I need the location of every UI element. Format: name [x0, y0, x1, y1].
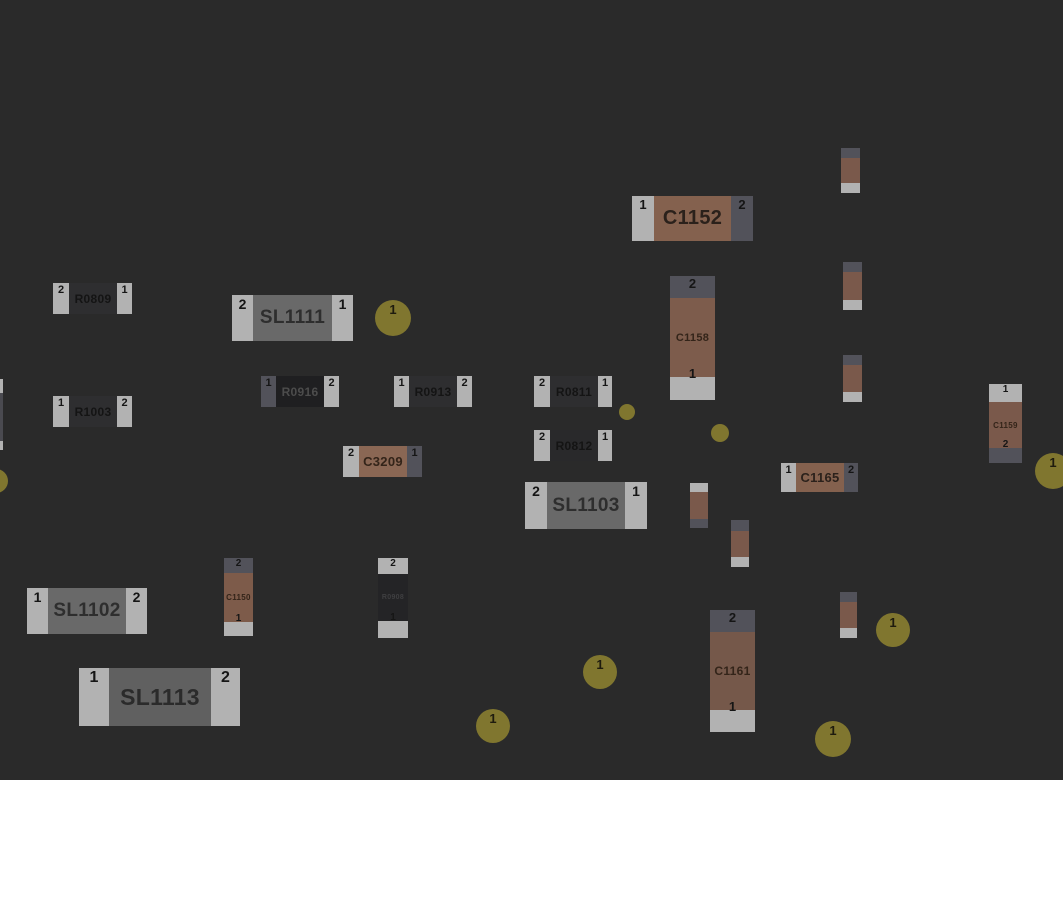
pad-1[interactable]: 1	[27, 588, 48, 634]
component-body	[841, 158, 860, 183]
pad-2[interactable]: 2	[731, 196, 753, 241]
component-label: SL1111	[260, 307, 325, 329]
via[interactable]: 1	[375, 300, 411, 336]
pad-1[interactable]: 1	[670, 377, 715, 400]
component-body: SL1102	[48, 588, 126, 634]
pad-2[interactable]: 2	[534, 430, 550, 461]
pad-2[interactable]: 2	[53, 283, 69, 314]
pad-number: 2	[539, 432, 545, 443]
pad-number: 1	[121, 285, 127, 296]
pad-2[interactable]	[843, 300, 862, 310]
pad-2[interactable]: 2	[343, 446, 359, 477]
component-body: C3209	[359, 446, 407, 477]
pad-2[interactable]: 2	[232, 295, 253, 341]
component-unlabeled[interactable]	[0, 379, 3, 450]
page-background	[0, 780, 1063, 919]
component-body	[843, 272, 862, 300]
pad-number: 2	[729, 611, 736, 624]
pad-number: 2	[121, 398, 127, 409]
pad-number: 2	[239, 297, 247, 311]
component-C1150[interactable]: 2C11501	[224, 558, 253, 636]
pad-2[interactable]: 2	[670, 276, 715, 298]
component-label: C3209	[363, 454, 403, 469]
component-body: R1003	[69, 396, 117, 427]
pad-number: 1	[729, 700, 736, 713]
pad-1[interactable]	[731, 520, 749, 531]
component-body: SL1113	[109, 668, 211, 726]
component-body	[0, 393, 3, 441]
component-label: R1003	[75, 405, 112, 419]
pad-1[interactable]: 1	[378, 621, 408, 638]
component-label: R0908	[382, 594, 404, 601]
pad-number: 2	[328, 378, 334, 389]
component-body	[840, 602, 857, 628]
via[interactable]	[0, 469, 8, 493]
pad-2[interactable]: 2	[117, 396, 132, 427]
component-label: R0809	[75, 292, 112, 306]
pad-1[interactable]	[843, 355, 862, 365]
pad-number: 2	[133, 590, 141, 604]
component-label: R0916	[282, 385, 319, 399]
component-body	[690, 492, 708, 519]
pad-1[interactable]: 1	[332, 295, 353, 341]
pad-2[interactable]	[0, 441, 3, 450]
via[interactable]: 1	[476, 709, 510, 743]
component-SL1113[interactable]: 1SL11132	[79, 668, 240, 726]
pad-number: 2	[848, 465, 854, 476]
component-body	[731, 531, 749, 557]
component-R1003[interactable]: 1R10032	[53, 396, 132, 427]
pad-number: 1	[689, 367, 696, 380]
pad-1[interactable]: 1	[224, 622, 253, 636]
pad-number: 2	[532, 484, 540, 498]
component-R0812[interactable]: 2R08121	[534, 430, 612, 461]
pad-2[interactable]	[690, 519, 708, 528]
via[interactable]: 1	[1035, 453, 1063, 489]
via-number: 1	[1049, 453, 1056, 469]
via-number: 1	[889, 613, 896, 629]
pad-2[interactable]: 2	[224, 558, 253, 573]
pad-number: 1	[90, 670, 99, 686]
pad-1[interactable]	[690, 483, 708, 492]
pad-number: 2	[689, 277, 696, 290]
via-number: 1	[596, 655, 603, 671]
pad-2[interactable]	[841, 183, 860, 193]
pad-1[interactable]: 1	[261, 376, 276, 407]
component-body: R0913	[409, 376, 457, 407]
pad-number: 2	[236, 559, 242, 569]
pad-2[interactable]: 2	[534, 376, 550, 407]
board-canvas[interactable]: 1C115222R080912SL111111R100321R091621R09…	[0, 0, 1063, 780]
pad-number: 2	[221, 670, 230, 686]
pad-2[interactable]: 2	[211, 668, 240, 726]
pad-1[interactable]: 1	[79, 668, 109, 726]
via-number: 1	[389, 300, 396, 316]
pad-1[interactable]: 1	[53, 396, 69, 427]
component-label: R0913	[415, 385, 452, 399]
component-label: C1158	[676, 332, 709, 344]
component-label: R0812	[556, 439, 593, 453]
pad-number: 1	[1003, 385, 1009, 395]
component-SL1102[interactable]: 1SL11022	[27, 588, 147, 634]
pad-2[interactable]: 2	[457, 376, 472, 407]
component-body: R0809	[69, 283, 117, 314]
pad-number: 2	[390, 559, 396, 569]
pad-number: 1	[632, 484, 640, 498]
component-C1159[interactable]: 1C11592	[989, 384, 1022, 463]
pad-1[interactable]: 1	[117, 283, 132, 314]
component-R0809[interactable]: 2R08091	[53, 283, 132, 314]
component-SL1103[interactable]: 2SL11031	[525, 482, 647, 529]
via[interactable]: 1	[815, 721, 851, 757]
pad-2[interactable]: 2	[126, 588, 147, 634]
component-body: C1152	[654, 196, 731, 241]
component-C1152[interactable]: 1C11522	[632, 196, 753, 241]
pad-2[interactable]: 2	[844, 463, 858, 492]
pad-number: 1	[602, 378, 608, 389]
component-body: R0812	[550, 430, 598, 461]
component-unlabeled[interactable]	[843, 262, 862, 310]
via[interactable]: 1	[876, 613, 910, 647]
pad-2[interactable]: 2	[378, 558, 408, 574]
pad-number: 2	[1003, 440, 1009, 450]
pad-number: 1	[58, 398, 64, 409]
pad-number: 1	[236, 614, 242, 624]
component-body	[843, 365, 862, 392]
pad-1[interactable]	[843, 262, 862, 272]
component-label: C1165	[800, 470, 839, 485]
pad-number: 1	[602, 432, 608, 443]
pad-1[interactable]: 1	[407, 446, 422, 477]
pad-number: 1	[34, 590, 42, 604]
via[interactable]: 1	[583, 655, 617, 689]
component-label: SL1102	[53, 600, 120, 622]
pad-number: 2	[58, 285, 64, 296]
pad-number: 1	[639, 198, 646, 211]
pad-1[interactable]: 1	[989, 384, 1022, 402]
pad-number: 1	[390, 613, 396, 623]
component-R0908[interactable]: 2R09081	[378, 558, 408, 638]
pad-2[interactable]	[840, 628, 857, 638]
pad-2[interactable]: 2	[525, 482, 547, 529]
pad-2[interactable]	[731, 557, 749, 567]
pad-1[interactable]: 1	[625, 482, 647, 529]
component-label: C1152	[663, 207, 722, 230]
component-unlabeled[interactable]	[841, 148, 860, 193]
pad-number: 2	[348, 448, 354, 459]
component-C1165[interactable]: 1C11652	[781, 463, 858, 492]
component-body: SL1111	[253, 295, 332, 341]
component-label: SL1113	[120, 684, 200, 711]
pad-1[interactable]: 1	[710, 710, 755, 732]
pad-2[interactable]: 2	[324, 376, 339, 407]
via-number: 1	[829, 721, 836, 737]
pad-number: 1	[398, 378, 404, 389]
component-body: R0916	[276, 376, 324, 407]
component-R0913[interactable]: 1R09132	[394, 376, 472, 407]
component-R0811[interactable]: 2R08111	[534, 376, 612, 407]
component-label: C1150	[226, 593, 251, 602]
pad-number: 1	[339, 297, 347, 311]
pad-2[interactable]: 2	[710, 610, 755, 632]
component-unlabeled[interactable]	[840, 592, 857, 638]
pad-1[interactable]: 1	[394, 376, 409, 407]
pad-1[interactable]	[841, 148, 860, 158]
pad-2[interactable]: 2	[989, 448, 1022, 463]
component-label: C1159	[993, 421, 1018, 430]
pad-1[interactable]	[840, 592, 857, 602]
component-body: R0811	[550, 376, 598, 407]
pad-number: 1	[411, 448, 417, 459]
component-label: C1161	[714, 664, 750, 678]
component-label: SL1103	[552, 495, 619, 517]
pad-1[interactable]	[0, 379, 3, 393]
pad-2[interactable]	[843, 392, 862, 402]
component-SL1111[interactable]: 2SL11111	[232, 295, 353, 341]
component-C1158[interactable]: 2C11581	[670, 276, 715, 400]
via[interactable]	[711, 424, 729, 442]
component-unlabeled[interactable]	[690, 483, 708, 528]
pad-number: 1	[785, 465, 791, 476]
pad-1[interactable]: 1	[598, 376, 612, 407]
via[interactable]	[619, 404, 635, 420]
pad-number: 2	[738, 198, 745, 211]
pad-1[interactable]: 1	[781, 463, 796, 492]
component-body: C1165	[796, 463, 844, 492]
via-number: 1	[489, 709, 496, 725]
pad-1[interactable]: 1	[598, 430, 612, 461]
component-body: SL1103	[547, 482, 625, 529]
component-label: R0811	[556, 385, 592, 399]
component-unlabeled[interactable]	[731, 520, 749, 567]
component-C1161[interactable]: 2C11611	[710, 610, 755, 732]
pad-number: 2	[539, 378, 545, 389]
pad-1[interactable]: 1	[632, 196, 654, 241]
component-C3209[interactable]: 2C32091	[343, 446, 422, 477]
component-unlabeled[interactable]	[843, 355, 862, 402]
component-R0916[interactable]: 1R09162	[261, 376, 339, 407]
pad-number: 2	[461, 378, 467, 389]
pad-number: 1	[265, 378, 271, 389]
